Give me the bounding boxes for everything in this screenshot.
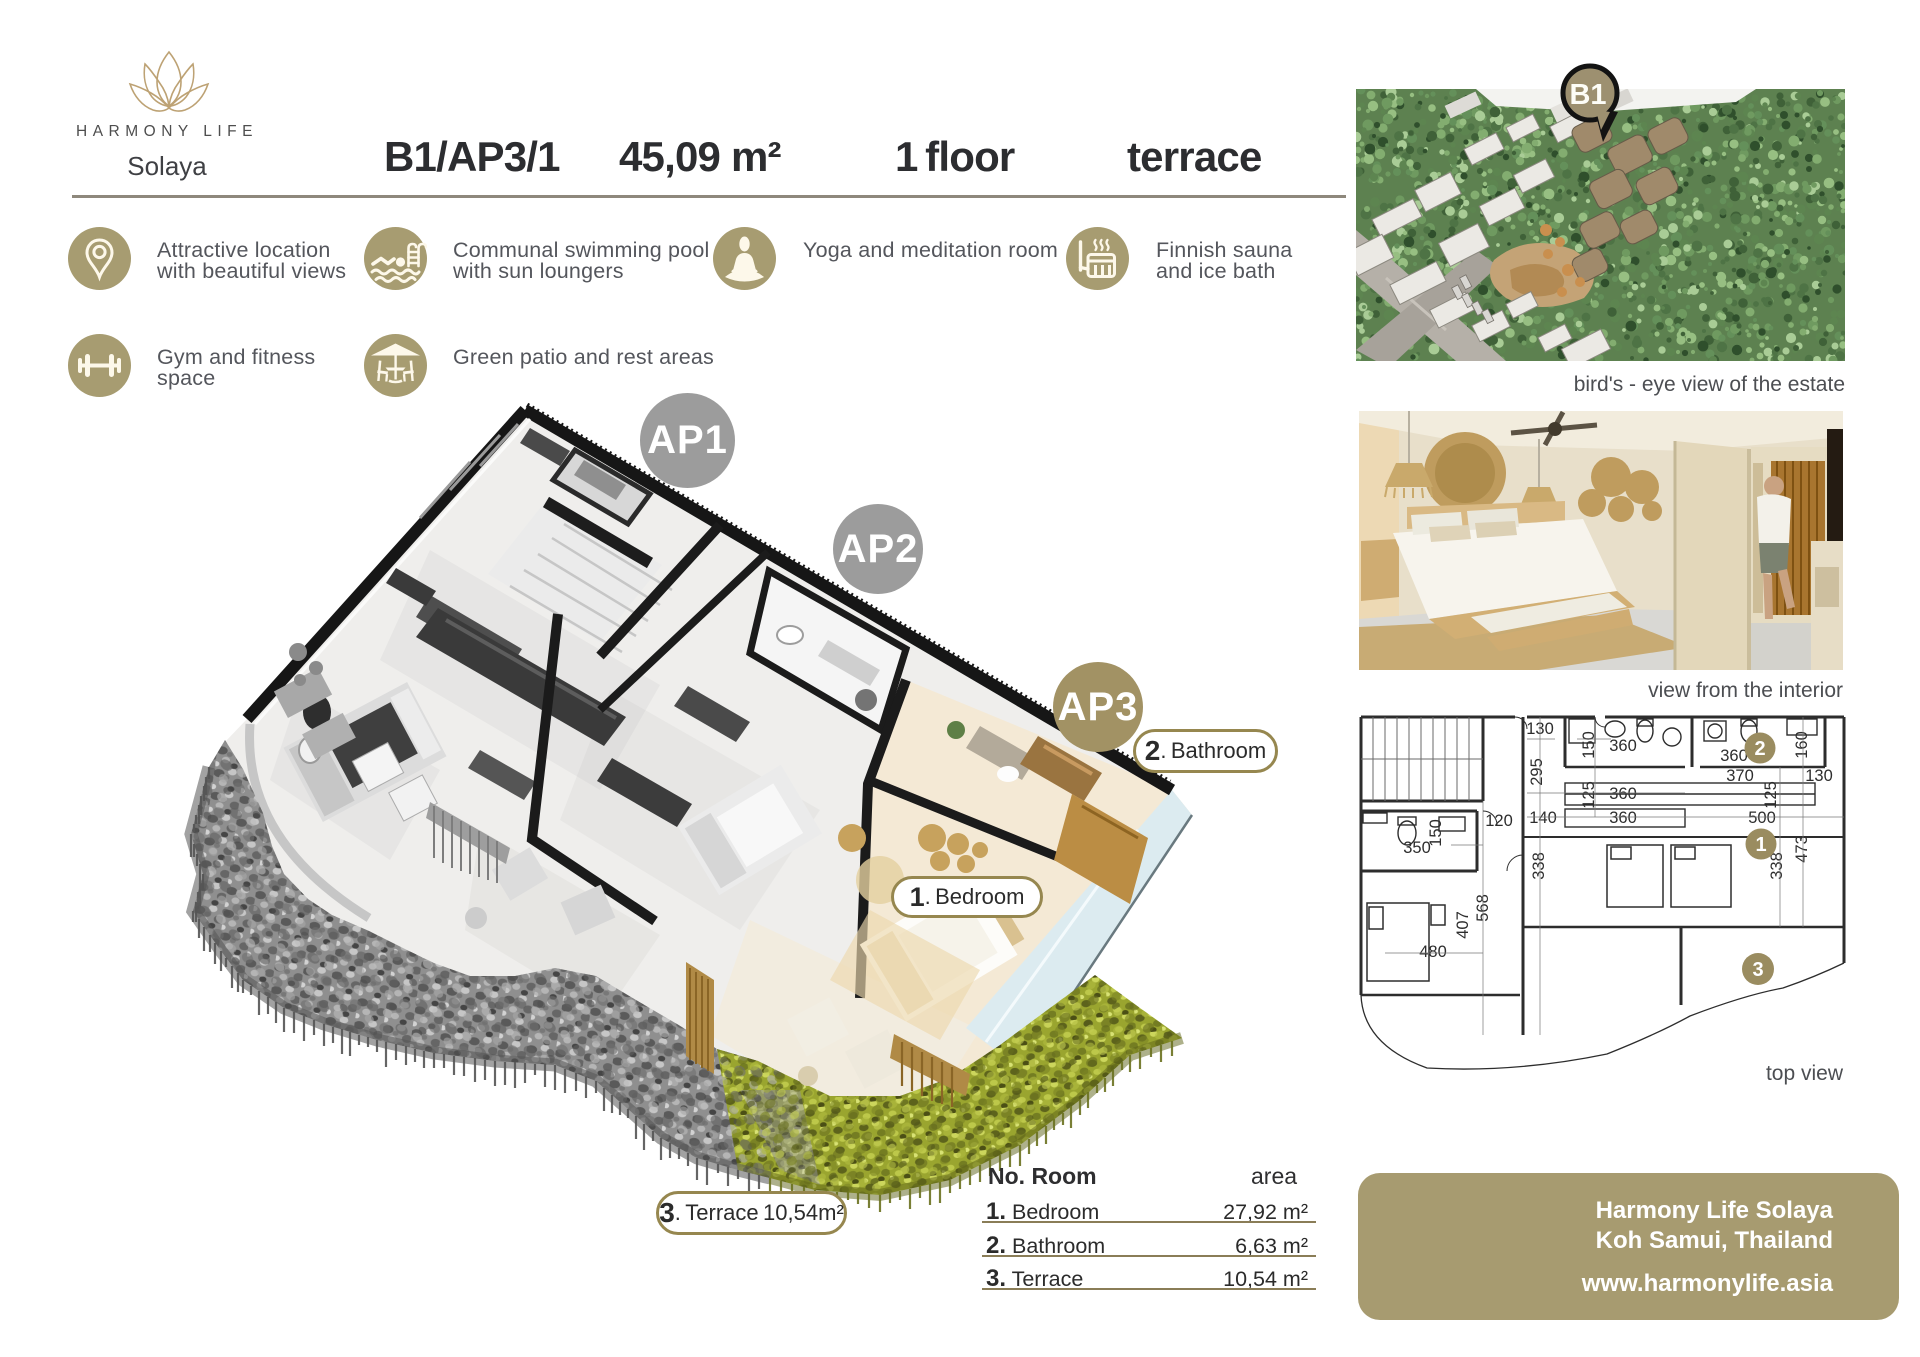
- svg-text:338: 338: [1768, 852, 1786, 880]
- svg-text:360: 360: [1609, 785, 1637, 803]
- svg-text:120: 120: [1485, 812, 1513, 830]
- svg-text:130: 130: [1805, 767, 1833, 785]
- svg-text:360: 360: [1720, 747, 1748, 765]
- svg-text:480: 480: [1419, 943, 1447, 961]
- svg-text:360: 360: [1609, 809, 1637, 827]
- svg-text:1: 1: [1755, 834, 1766, 856]
- svg-text:140: 140: [1529, 809, 1557, 827]
- svg-text:500: 500: [1748, 809, 1776, 827]
- svg-text:150: 150: [1427, 819, 1445, 847]
- svg-text:295: 295: [1528, 758, 1546, 786]
- svg-text:370: 370: [1726, 767, 1754, 785]
- svg-text:160: 160: [1793, 731, 1811, 759]
- svg-text:473: 473: [1793, 835, 1811, 863]
- svg-text:2: 2: [1754, 738, 1765, 760]
- svg-text:338: 338: [1530, 852, 1548, 880]
- svg-text:3: 3: [1752, 959, 1763, 981]
- svg-text:B1: B1: [1569, 79, 1606, 111]
- svg-text:360: 360: [1609, 737, 1637, 755]
- svg-text:407: 407: [1454, 911, 1472, 939]
- svg-text:125: 125: [1762, 781, 1780, 809]
